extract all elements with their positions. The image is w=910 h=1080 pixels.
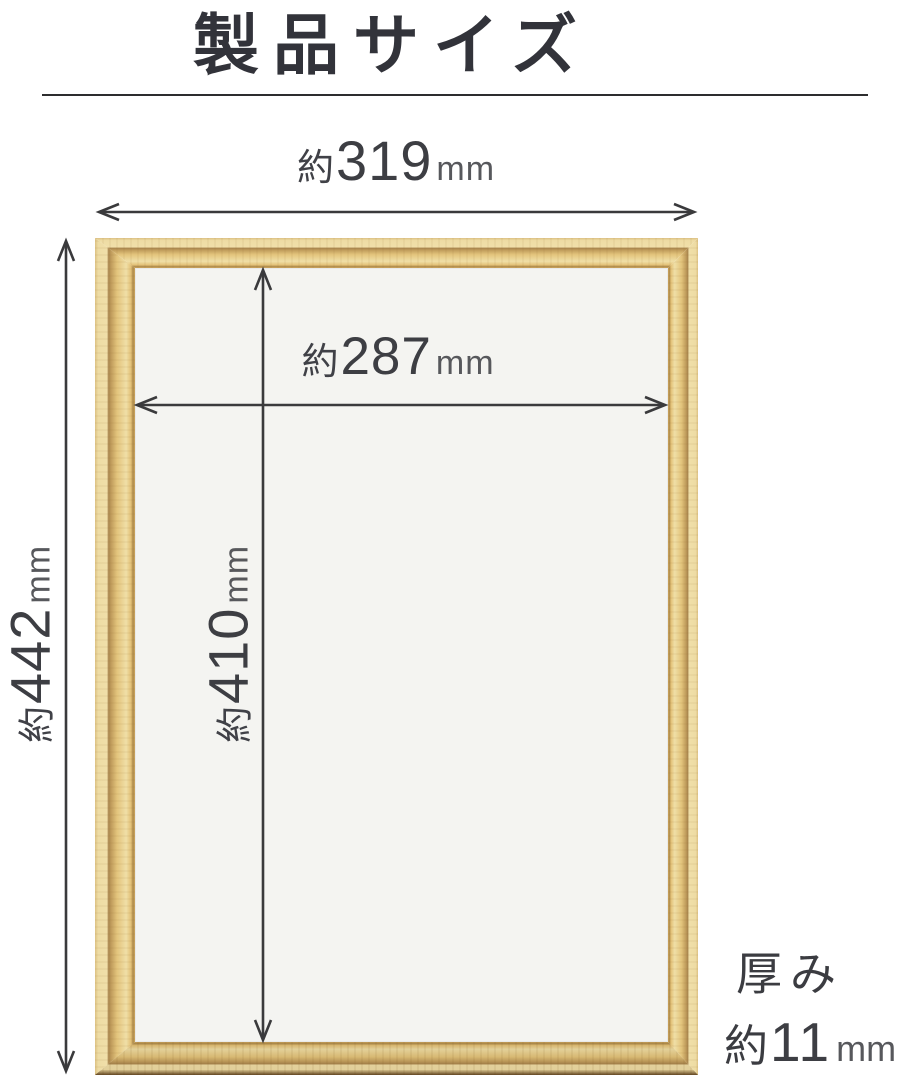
thickness-label: 厚み: [736, 938, 896, 1004]
frame-top-rail: [95, 238, 698, 268]
frame-left-rail: [95, 238, 135, 1075]
product-size-diagram: 製品サイズ: [0, 0, 910, 1080]
inner-width-unit: mm: [436, 344, 495, 383]
outer-height-label: 約 442 mm: [0, 545, 63, 743]
inner-height-unit: mm: [218, 545, 257, 604]
outer-width-unit: mm: [436, 150, 495, 189]
thickness-value-row: 約 11 mm: [724, 1010, 896, 1074]
outer-width-arrow: [99, 204, 694, 220]
outer-height-approx: 約: [7, 706, 61, 743]
inner-width-label: 約 287 mm: [301, 326, 494, 387]
outer-height-unit: mm: [20, 545, 59, 604]
thickness-note: 厚み 約 11 mm: [724, 938, 896, 1074]
inner-width-approx: 約: [301, 331, 338, 385]
frame-right-rail: [668, 238, 698, 1075]
inner-width-value: 287: [340, 326, 431, 387]
thickness-value: 11: [770, 1010, 831, 1074]
outer-height-value: 442: [0, 608, 63, 704]
outer-width-value: 319: [336, 128, 432, 193]
outer-width-label: 約 319 mm: [297, 128, 495, 193]
thickness-unit: mm: [836, 1028, 896, 1070]
inner-height-label: 約 410 mm: [196, 545, 261, 743]
inner-height-value: 410: [196, 608, 261, 704]
thickness-approx: 約: [724, 1010, 768, 1074]
outer-width-approx: 約: [297, 137, 334, 191]
frame-bottom-rail: [95, 1042, 698, 1075]
page-title: 製品サイズ: [193, 0, 591, 88]
title-divider: [42, 94, 868, 96]
inner-height-approx: 約: [205, 706, 259, 743]
